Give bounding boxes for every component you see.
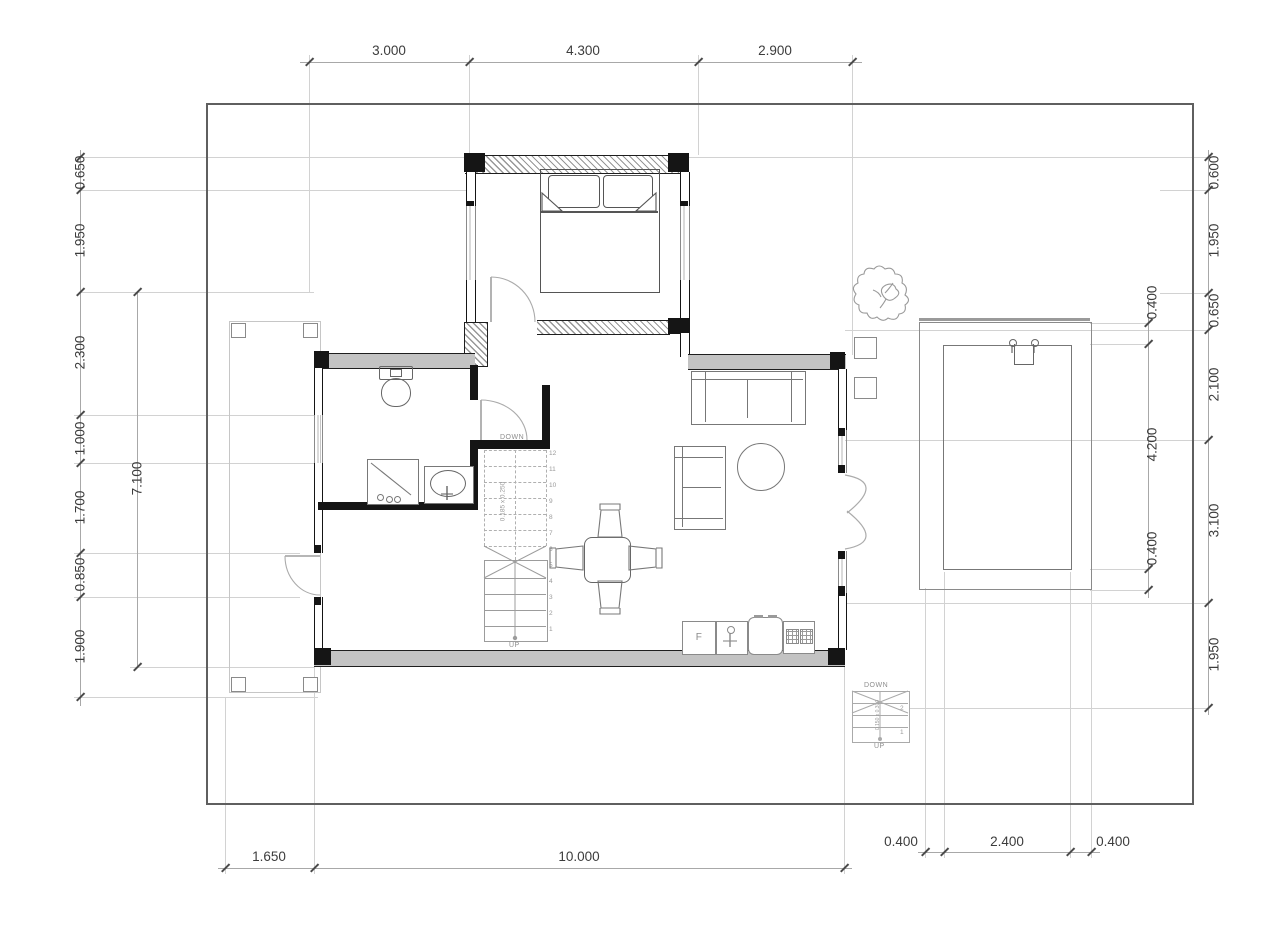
dim-label: 10.000 [544,849,614,864]
sofa-arm [675,447,723,458]
wall-joint [680,201,688,206]
stair-number: 7 [549,530,553,537]
sink-handle [754,615,763,618]
porch-column [231,677,246,692]
sink-handle [768,615,777,618]
dim-label: 2.900 [740,43,810,58]
dim-label: 2.400 [972,834,1042,849]
pool-ladder-post [1031,339,1039,347]
stair-head-wall [470,440,550,449]
dim-line-pool [918,852,1100,853]
pool-deck-edge [919,318,1090,321]
dim-label: 7.100 [130,449,145,509]
kitchen-faucet [727,626,735,634]
dim-label: 1.900 [73,617,88,677]
bed-pillow [548,175,600,208]
porch-column [231,323,246,338]
door-jamb [314,545,321,553]
dim-label: 0.600 [1207,143,1222,203]
dim-label: 0.400 [1145,273,1160,333]
door-jamb [314,597,321,605]
exterior-stair-number: 1 [900,729,904,736]
dim-label: 1.950 [1207,625,1222,685]
dim-label: 2.300 [73,323,88,383]
dim-line-top [300,62,862,63]
stair-down-label: DOWN [500,434,524,441]
stair-note: 0.185 x 0.250 [500,472,507,532]
dim-label: 0.400 [866,834,936,849]
dim-label: 1.950 [73,211,88,271]
refrigerator-label: F [683,632,715,643]
bedroom-east-window [680,206,690,280]
sofa-back [692,372,803,380]
stair-number: 11 [549,466,556,473]
dim-label: 0.650 [1207,281,1222,341]
pool-ladder-rail [1014,344,1034,365]
dim-label: 0.850 [73,545,88,605]
porch-column [303,677,318,692]
dim-label: 4.300 [548,43,618,58]
stair-number: 4 [549,578,553,585]
service-pad [854,377,877,399]
shower-tray [367,459,419,505]
dim-label: 1.950 [1207,211,1222,271]
porch-outline [229,321,321,693]
service-pad [854,337,877,359]
sink-basin [430,470,466,497]
floor-plan-canvas: F DOWN UP 0.185 x 0.250 12 11 10 9 8 7 6… [0,0,1280,929]
exterior-stair-note: 0.150 x 0.300 [875,687,881,743]
sofa-main [691,371,806,425]
dim-label: 0.650 [73,143,88,203]
stair-stringer-dashed [515,450,516,560]
refrigerator: F [682,621,716,655]
coffee-table [737,443,785,491]
door-jamb [838,428,845,436]
door-jamb [838,465,845,473]
stair-number: 2 [549,610,553,617]
west-window [314,415,323,463]
stair-number: 5 [549,562,553,569]
cooktop-burners [786,629,799,644]
bedroom-west-window [466,206,476,280]
toilet-flush-button [390,369,402,377]
stair-lower-flight [484,560,548,642]
dim-label: 0.400 [1145,519,1160,579]
pool-ladder-post [1009,339,1017,347]
stair-tread [484,578,546,579]
east-wall [838,593,847,650]
stair-up-label: UP [509,642,520,649]
sofa-side [674,446,726,530]
sofa-arm [791,372,805,422]
wall-post [464,153,485,172]
wall-joint [838,586,845,596]
dim-label: 1.650 [234,849,304,864]
stair-tread [484,610,546,611]
cooktop-burners [800,629,813,644]
dim-label: 0.400 [1078,834,1148,849]
stair-number: 10 [549,482,556,489]
stair-number: 9 [549,498,553,505]
stair-stringer-dashed [546,450,547,546]
sofa-back [675,447,683,527]
east-wall [838,369,847,430]
wall-post [314,648,331,665]
dining-table [584,537,631,583]
exterior-stair-number: 2 [900,705,904,712]
stair-number: 8 [549,514,553,521]
stair-number: 12 [549,450,556,457]
north-wall-east [688,354,846,370]
shower-tap [386,496,393,503]
sofa-cushion [683,458,721,488]
pool-water [943,345,1072,570]
toilet-bowl [381,378,411,407]
stair-stringer-dashed [484,450,485,546]
dim-label: 4.200 [1145,415,1160,475]
wall-post [314,351,329,368]
bed-pillow [603,175,653,208]
west-wall [314,368,323,415]
kitchen-sink-unit [748,617,783,655]
sofa-arm [692,372,706,422]
exterior-stair-up-label: UP [874,743,885,750]
wall-post [668,318,689,334]
wall-post [668,153,689,172]
bed-blanket-line [540,211,658,213]
stair-number: 1 [549,626,553,633]
shower-tap [394,496,401,503]
dim-label: 3.100 [1207,491,1222,551]
dim-label: 3.000 [354,43,424,58]
door-jamb [838,551,845,559]
bathroom-east-wall [470,365,478,400]
stair-tread [484,594,546,595]
dim-label: 1.000 [73,409,88,469]
wall-joint [466,201,474,206]
sofa-arm [675,518,723,529]
sofa-cushion [706,380,748,418]
stair-number: 6 [549,546,553,553]
shower-drain [377,494,384,501]
stair-number: 3 [549,594,553,601]
dim-label: 1.700 [73,478,88,538]
bedroom-south-wall [537,320,670,335]
stair-tread [484,626,546,627]
wall-post [830,352,845,369]
wall-post [828,648,845,665]
dim-label: 2.100 [1207,355,1222,415]
porch-column [303,323,318,338]
stair-east-wall [542,385,550,449]
